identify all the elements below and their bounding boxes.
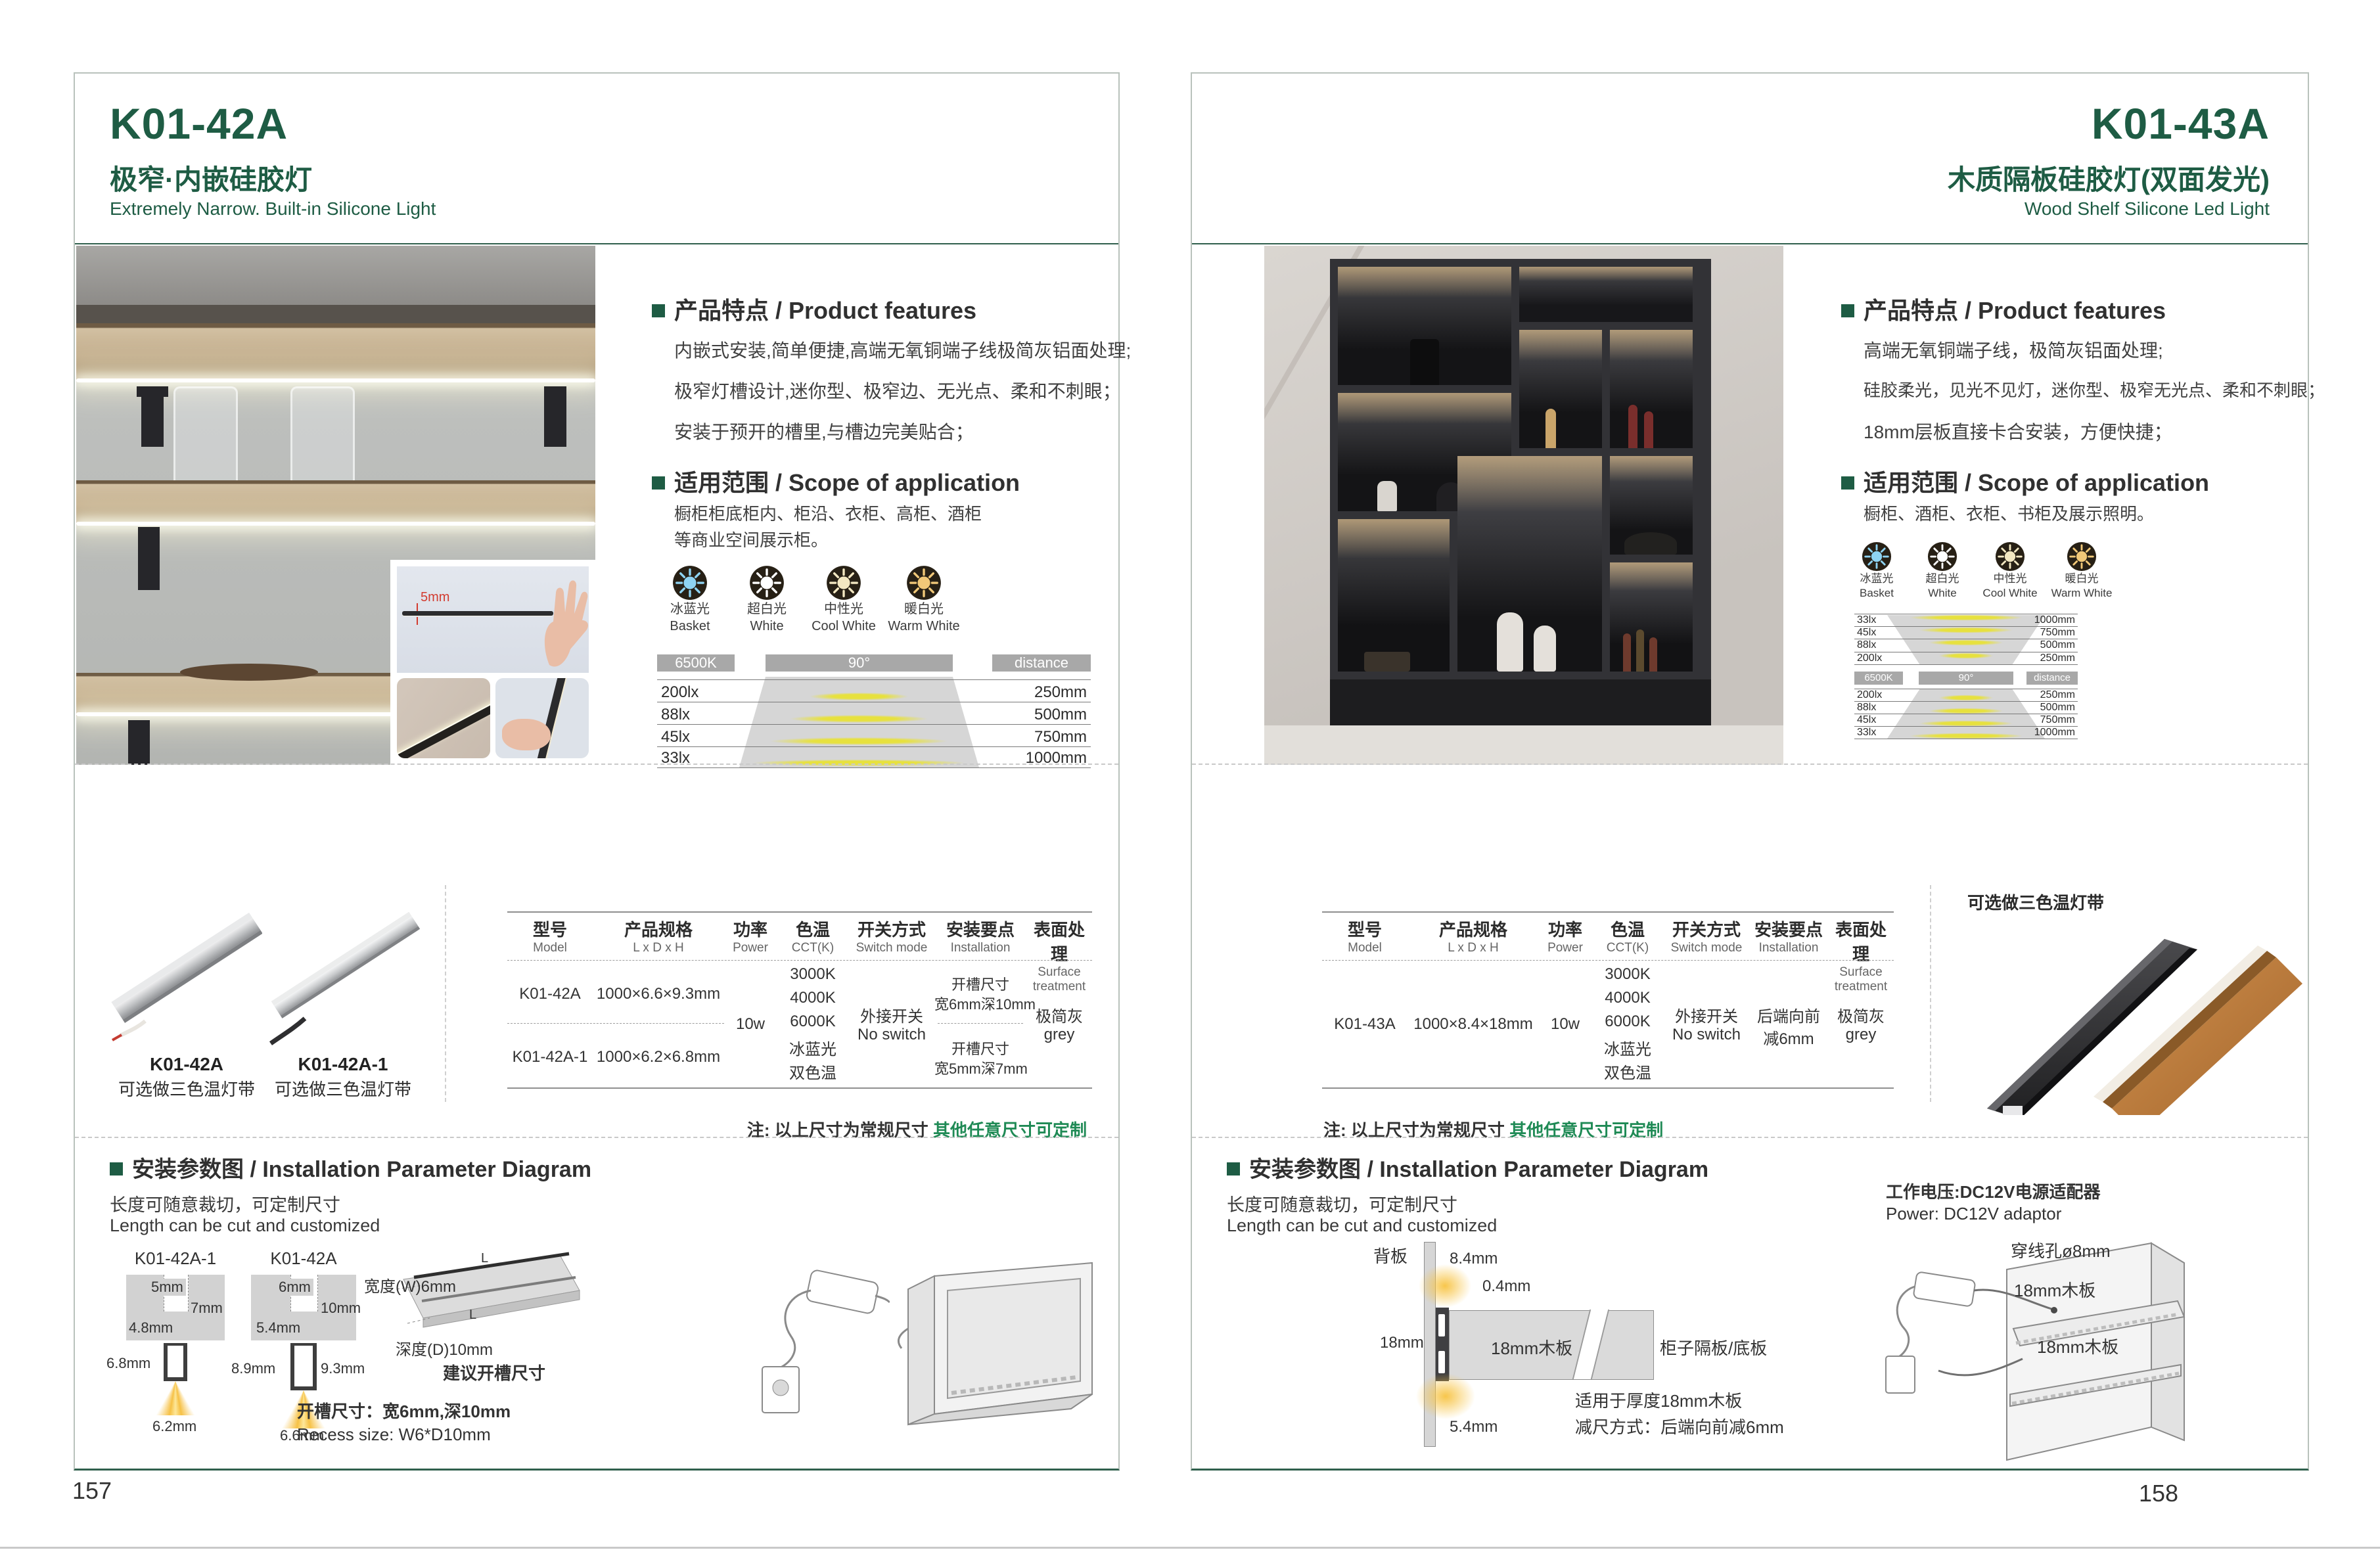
board-label: 18mm木板 [1491,1335,1572,1359]
dim-height: 6.8mm [106,1355,150,1372]
product-note: 可选做三色温灯带 [251,1076,435,1101]
inset-thumb-hand-strip [495,678,589,758]
cell-model: K01-43A [1322,1015,1407,1034]
col-header-size: 产品规格L x D x H [1407,917,1539,955]
distance-bar: distance [2026,672,2078,685]
page-left: K01-42A 极窄·内嵌硅胶灯 Extremely Narrow. Built… [74,72,1120,1471]
cut-note-cn: 长度可随意裁切，可定制尺寸 [1227,1191,1457,1216]
spec-table: 型号Model 产品规格L x D x H 功率Power 色温CCT(K) 开… [507,911,1092,1089]
distance-value: 1000mm [2034,727,2075,739]
col-header-install: 安装要点Installation [934,917,1026,955]
board-break [1572,1310,1609,1379]
cell-power: 10w [1539,1015,1591,1034]
cabinet-cell [1610,456,1693,555]
cut-note-en: Length can be cut and customized [1227,1216,1497,1236]
decor-rabbit-figurine [1497,612,1523,672]
light-icon-warm-white: 暖白光Warm White [2050,541,2113,601]
dim-arrow [417,617,418,625]
sun-icon [906,565,942,601]
shelf-bracket [544,386,566,447]
cell-switch: 外接开关 [849,1003,934,1026]
cabinet-cell [1610,330,1693,448]
thumb-strip [397,691,490,758]
page-subtitle-en: Extremely Narrow. Built-in Silicone Ligh… [110,198,436,219]
cell-surface: 极简灰 [1828,1003,1894,1026]
catalog-spread: K01-42A 极窄·内嵌硅胶灯 Extremely Narrow. Built… [0,0,2380,1552]
cell-cct: 6000K [1591,1013,1664,1031]
lux-value: 200lx [1857,689,1882,701]
icon-label-cn: 冰蓝光 [670,602,710,616]
feature-line: 极窄灯槽设计,迷你型、极窄边、无光点、柔和不刺眼； [674,377,1121,403]
features-heading-text: 产品特点 / Product features [1864,297,2166,324]
col-header-power: 功率Power [724,917,777,955]
light-icon-ice-blue: 冰蓝光Basket [1849,541,1904,601]
icon-label-cn: 超白光 [1926,572,1959,585]
length-label: L [469,1308,476,1323]
recess-size-en: Recess size: W6*D10mm [297,1425,491,1445]
power-note-en: Power: DC12V adaptor [1886,1204,2061,1224]
cell-switch: No switch [849,1026,934,1044]
light-icon-cool-white: 中性光Cool White [811,565,877,635]
decor-bottle [1623,633,1631,672]
dim-top: 5mm [149,1279,186,1296]
cabinet-frame [1330,259,1711,679]
header-rule [1192,243,2308,244]
decor-silhouette [1410,339,1439,385]
cell-surface: grey [1828,1026,1894,1044]
board-width-label: 宽度(W)6mm [364,1273,456,1296]
decor-rabbit-figurine [1534,626,1556,672]
thumb-hand [502,719,551,750]
light-icon-ice-blue: 冰蓝光Basket [657,565,723,635]
page-subtitle-cn: 木质隔板硅胶灯(双面发光) [1948,158,2270,198]
light-color-icons: 冰蓝光Basket 超白光White [657,565,1025,644]
dim-slot: 4.8mm [129,1319,173,1336]
page-title: K01-42A [110,99,288,148]
col-header-model: 型号Model [1322,917,1407,955]
fit-note-1: 适用于厚度18mm木板 [1575,1388,1742,1412]
feature-line: 高端无氧铜端子线，极简灰铝面处理; [1864,336,2163,363]
light-pool [741,736,977,746]
cell-cct: 3000K [1591,965,1664,984]
photo-ceiling [76,246,595,305]
lux-value: 200lx [1857,652,1882,664]
cabinet-base [1330,679,1711,725]
shelf-bracket [128,720,150,765]
cell-install: 后端向前 [1749,1003,1828,1026]
section-divider [75,764,1118,765]
decor-glassware [1624,532,1677,555]
angle-bar: 90° [1919,672,2013,685]
cell-install: 宽5mm深7mm [934,1057,1026,1078]
distance-bar: distance [992,654,1091,672]
dim-84: 8.4mm [1450,1250,1498,1268]
bullet-square [652,304,665,317]
product-label: K01-42A-1 [264,1054,422,1075]
spec-table: 型号Model 产品规格L x D x H 功率Power 色温CCT(K) 开… [1322,911,1894,1089]
led-strip-1 [76,378,595,382]
cabinet-cell [1338,267,1511,385]
inset-strip-photo: 5mm [397,566,589,673]
light-icon-warm-white: 暖白光Warm White [888,565,960,635]
cell-switch: No switch [1664,1026,1749,1044]
profile-side [1436,1308,1449,1381]
hero-photo-shelf-lighting: 5mm [76,246,595,765]
cell-cct: 冰蓝光 [777,1036,849,1059]
light-glow-top [1419,1264,1471,1308]
inset-thumb-wood-strip [397,678,490,758]
product-note: 可选做三色温灯带 [1967,890,2104,914]
cell-install: 减6mm [1749,1026,1828,1049]
light-icon-cool-white: 中性光Cool White [1980,541,2040,601]
cabinet-cell [1519,267,1693,322]
scope-line: 等商业空间展示柜。 [674,527,828,551]
install-heading: 安装参数图 / Installation Parameter Diagram [1227,1151,1708,1183]
lux-distance-table-double: 33lx 1000mm 45lx 750mm 88lx 500mm 200lx … [1854,614,2078,742]
lux-value: 33lx [1857,727,1876,739]
sun-icon [826,565,861,601]
photo-shelf-1 [76,323,595,381]
sun-icon [1995,541,2025,572]
product-render-K01-42A-1 [264,882,422,1053]
icon-label-cn: 暖白光 [2065,572,2099,585]
scope-heading: 适用范围 / Scope of application [652,464,1020,498]
lux-value: 33lx [1857,614,1876,626]
cell-size: 1000×6.2×6.8mm [593,1048,724,1066]
lux-value: 88lx [1857,639,1876,651]
kelvin-bar: 6500K [657,654,735,672]
page-subtitle-en: Wood Shelf Silicone Led Light [2025,198,2270,219]
sun-icon [749,565,785,601]
light-color-icons: 冰蓝光Basket 超白光White 中性光Cool White [1849,541,2125,607]
backboard-label: 背板 [1373,1243,1407,1267]
acrylic-box [173,386,238,484]
floor [1264,725,1783,765]
diagram-label: K01-42A-1 [126,1248,225,1269]
cut-note-en: Length can be cut and customized [110,1216,380,1236]
wood-tray [180,664,318,681]
cell-install: 开槽尺寸 [934,973,1026,994]
page-number-left: 157 [72,1477,112,1505]
recess-size-cn: 开槽尺寸：宽6mm,深10mm [297,1398,511,1423]
bullet-square [652,476,665,490]
light-glow-bottom [1416,1373,1475,1419]
dim-bottom: 6.2mm [152,1418,196,1435]
kelvin-bar: 6500K [1854,672,1903,685]
bullet-square [1841,304,1854,317]
cell-install: 开槽尺寸 [934,1038,1026,1059]
cabinet-cell [1519,330,1602,448]
scope-heading-text: 适用范围 / Scope of application [1864,469,2209,496]
cell-size: 1000×8.4×18mm [1407,1015,1539,1034]
icon-label-cn: 暖白光 [904,602,944,616]
install-heading: 安装参数图 / Installation Parameter Diagram [110,1151,591,1183]
col-header-switch: 开关方式Switch mode [1664,917,1749,955]
features-heading-text: 产品特点 / Product features [674,297,976,324]
lux-value: 45lx [1857,627,1876,639]
install-heading-text: 安装参数图 / Installation Parameter Diagram [132,1157,591,1182]
icon-label-cn: 冰蓝光 [1860,572,1894,585]
cell-power: 10w [724,1015,777,1034]
product-table-divider [445,885,446,1102]
distance-value: 250mm [1034,683,1087,702]
distance-value: 250mm [2040,689,2075,701]
feature-line: 18mm层板直接卡合安装，方便快捷； [1864,418,2172,444]
decor-bottle [1628,405,1637,448]
bullet-square [1841,476,1854,490]
cabinet-cell [1457,456,1602,672]
cell-cct: 双色温 [777,1060,849,1083]
icon-label-en: Warm White [2051,587,2113,599]
length-label: L [481,1251,488,1266]
cell-model: K01-42A [507,985,593,1003]
sun-icon [2067,541,2097,572]
decor-figurine [1377,481,1397,511]
scope-line: 橱柜、酒柜、衣柜、书柜及展示照明。 [1864,501,2154,525]
section-divider [75,1137,1118,1138]
col-header-size: 产品规格L x D x H [593,917,724,955]
product-render-K01-42A [111,882,262,1053]
lux-value: 200lx [661,683,698,702]
lux-value: 88lx [1857,702,1876,714]
dim-arrow [417,603,418,611]
power-note-cn: 工作电压:DC12V电源适配器 [1886,1179,2100,1203]
cell-install: 宽6mm深10mm [934,993,1026,1014]
fit-note-2: 减尺方式：后端向前减6mm [1575,1414,1784,1438]
feature-line: 安装于预开的槽里,与槽边完美贴合； [674,418,974,444]
diagram-label: K01-42A [251,1248,356,1269]
decor-bottle [1649,637,1657,672]
decor-vase [1545,409,1556,448]
distance-value: 500mm [2040,702,2075,714]
light-icon-white: 超白光White [1915,541,1970,601]
dim-top: 6mm [276,1279,313,1296]
cell-cct: 3000K [777,965,849,984]
dim-height-left: 8.9mm [231,1360,275,1377]
icon-label-en: White [750,619,783,633]
inset-dim-label: 5mm [421,590,449,605]
dim-depth: 10mm [321,1300,361,1317]
lux-distance-table: 6500K 90° distance 200lx 250mm 88lx 500m… [657,654,1091,767]
footer-rule [0,1547,2380,1549]
dim-slot: 5.4mm [256,1319,300,1336]
hole-label: 穿线孔ø8mm [2011,1238,2111,1262]
product-render-K01-43A [1948,911,2302,1115]
lux-value: 88lx [661,706,690,724]
icon-label-en: Warm White [888,619,959,633]
product-table-divider [1930,885,1931,1102]
col-header-switch: 开关方式Switch mode [849,917,934,955]
hero-photo-display-cabinet [1264,246,1783,765]
light-icon-white: 超白光White [734,565,800,635]
header-rule [75,243,1118,244]
decor-box [1364,652,1410,672]
cell-cct: 双色温 [1591,1060,1664,1083]
col-header-cct: 色温CCT(K) [1591,917,1664,955]
hand-photo [536,573,589,672]
bullet-square [110,1162,123,1175]
cell-cct: 4000K [777,989,849,1007]
profile-cross-section [290,1343,317,1390]
features-heading: 产品特点 / Product features [1841,292,2166,326]
distance-value: 500mm [1034,706,1087,724]
icon-label-cn: 中性光 [824,602,863,616]
cell-cct: 冰蓝光 [1591,1036,1664,1059]
acrylic-box [290,386,355,484]
lux-value: 45lx [1857,714,1876,726]
col-header-cct: 色温CCT(K) [777,917,849,955]
board-suggest-label: 建议开槽尺寸 [443,1360,545,1384]
bullet-square [1227,1162,1240,1175]
light-pool [718,758,1000,767]
cell-switch: 外接开关 [1664,1003,1749,1026]
photo-soffit [76,305,595,323]
features-heading: 产品特点 / Product features [652,292,976,326]
icon-label-en: Basket [670,619,710,633]
col-header-surface: 表面处理Surface treatment [1026,917,1092,994]
product-label: K01-42A [111,1054,262,1075]
sun-icon [672,565,708,601]
dim-54: 5.4mm [1450,1418,1498,1436]
cabinet-cell [1610,562,1693,672]
angle-bar: 90° [766,654,953,672]
page-number-right: 158 [2139,1480,2178,1507]
lux-value: 45lx [661,728,690,746]
scope-heading: 适用范围 / Scope of application [1841,464,2209,498]
shelf-label: 柜子隔板/底板 [1660,1335,1767,1359]
cell-size: 1000×6.6×9.3mm [593,985,724,1003]
distance-value: 750mm [2040,714,2075,726]
inset-strip [402,611,553,616]
icon-label-en: Basket [1860,587,1894,599]
decor-bottle [1644,411,1653,448]
dim-depth: 7mm [191,1300,223,1317]
section-divider [1192,764,2308,765]
feature-line: 内嵌式安装,简单便捷,高端无氧铜端子线极简灰铝面处理; [674,336,1131,363]
dim-height-right: 9.3mm [321,1360,365,1377]
distance-value: 250mm [2040,652,2075,664]
icon-label-en: Cool White [812,619,876,633]
sun-icon [1927,541,1957,572]
col-header-install: 安装要点Installation [1749,917,1828,955]
distance-value: 1000mm [2034,614,2075,626]
light-pool [767,714,951,724]
page-right: K01-43A 木质隔板硅胶灯(双面发光) Wood Shelf Silicon… [1191,72,2309,1471]
cabinet-cell [1338,519,1450,672]
power-adapter-sketch [745,1256,890,1427]
distance-value: 750mm [1034,728,1087,746]
sun-icon [1862,541,1892,572]
profile-cross-section [164,1343,187,1381]
decor-bottle [1636,629,1644,672]
page-subtitle-cn: 极窄·内嵌硅胶灯 [110,158,312,198]
cell-surface: grey [1026,1026,1092,1044]
shelf-bracket [138,527,160,590]
icon-label-cn: 超白光 [747,602,787,616]
distance-value: 750mm [2040,627,2075,639]
cell-surface: 极简灰 [1026,1003,1092,1026]
photo-inset-panel: 5mm [390,560,595,765]
icon-label-cn: 中性光 [1994,572,2027,585]
wood-label: 18mm木板 [2037,1334,2118,1358]
board-depth-label: 深度(D)10mm [396,1336,493,1359]
light-beam [156,1381,195,1415]
distance-value: 500mm [2040,639,2075,651]
section-divider [1192,1137,2308,1138]
col-header-power: 功率Power [1539,917,1591,955]
cell-cct: 6000K [777,1013,849,1031]
dim-18: 18mm [1380,1334,1424,1352]
light-pool [793,691,925,702]
icon-label-en: Cool White [1982,587,2037,599]
cell-model: K01-42A-1 [507,1048,593,1066]
scope-heading-text: 适用范围 / Scope of application [674,469,1020,496]
page-title: K01-43A [2092,99,2270,148]
shelf-bracket-flange [137,386,168,397]
scope-line: 橱柜柜底柜内、柜沿、衣柜、高柜、酒柜 [674,501,982,525]
wood-label: 18mm木板 [2014,1277,2095,1302]
col-header-model: 型号Model [507,917,593,955]
cell-cct: 4000K [1591,989,1664,1007]
led-strip-2 [76,522,595,526]
feature-line: 硅胶柔光，见光不见灯，迷你型、极窄无光点、柔和不刺眼； [1864,377,2325,401]
dim-04: 0.4mm [1482,1277,1530,1296]
cabinet-sketch [895,1250,1118,1440]
col-header-surface: 表面处理Surface treatment [1828,917,1894,994]
photo-shelf-2 [76,480,595,525]
icon-label-en: White [1928,587,1956,599]
install-heading-text: 安装参数图 / Installation Parameter Diagram [1249,1157,1708,1182]
cut-note-cn: 长度可随意裁切，可定制尺寸 [110,1191,340,1216]
